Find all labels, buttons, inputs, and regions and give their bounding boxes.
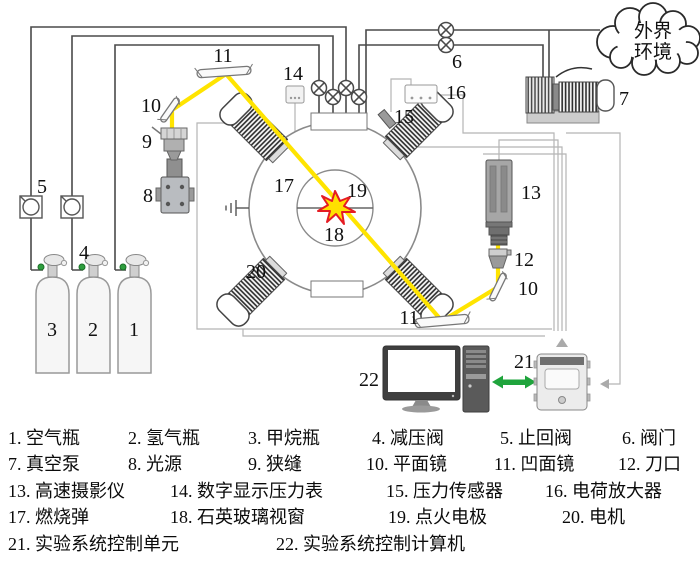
- monitor: [383, 346, 460, 413]
- check-valves: [20, 196, 83, 218]
- legend-pressure-sensor: 15. 压力传感器: [386, 477, 503, 503]
- light-source: [156, 159, 194, 213]
- check-valve-icon: [61, 196, 83, 218]
- control-unit: [534, 354, 590, 410]
- gas-cylinders: [36, 255, 151, 374]
- external-environment-cloud: 外界 环境: [597, 3, 700, 75]
- label-6: 6: [452, 51, 462, 73]
- label-21: 21: [514, 351, 534, 373]
- legend-methane-cylinder: 3. 甲烷瓶: [248, 424, 320, 450]
- electrode-terminal: [226, 200, 249, 216]
- legend-plane-mirror: 10. 平面镜: [366, 450, 447, 476]
- legend-control-unit: 21. 实验系统控制单元: [8, 530, 179, 556]
- label-11a: 11: [213, 45, 232, 67]
- label-4: 4: [79, 242, 89, 264]
- valve-icon: [312, 81, 327, 96]
- label-10b: 10: [518, 278, 538, 300]
- legend-digital-pressure-gauge: 14. 数字显示压力表: [170, 477, 323, 503]
- knife-edge: [489, 249, 511, 268]
- cloud-text-line2: 环境: [634, 41, 672, 63]
- computer-tower: [463, 346, 489, 412]
- charge-amplifier: [405, 85, 437, 103]
- legend-charge-amplifier: 16. 电荷放大器: [545, 477, 662, 503]
- label-18: 18: [324, 224, 344, 246]
- legend-knife-edge: 12. 刀口: [618, 450, 681, 476]
- legend-control-computer: 22. 实验系统控制计算机: [276, 530, 465, 556]
- label-13: 13: [521, 182, 541, 204]
- legend-pressure-regulator: 4. 减压阀: [372, 424, 444, 450]
- data-link-arrow-icon: [492, 376, 536, 389]
- vacuum-pump: [526, 68, 614, 123]
- legend-vacuum-pump: 7. 真空泵: [8, 450, 80, 476]
- bomb-bottom-flange: [311, 281, 363, 297]
- schematic-canvas: 外界 环境 1 2 3 4 5 6 7 8 9 10 11 14 15 16 1…: [0, 0, 700, 424]
- valve-icon: [326, 90, 341, 105]
- pressure-regulators: [38, 255, 149, 278]
- control-computer: [383, 346, 489, 413]
- label-17: 17: [274, 175, 294, 197]
- label-15: 15: [394, 106, 414, 128]
- arrow-up-icon: [556, 338, 568, 347]
- figure-experimental-system-schematic: 外界 环境 1 2 3 4 5 6 7 8 9 10 11 14 15 16 1…: [0, 0, 700, 572]
- label-8: 8: [143, 185, 153, 207]
- legend-quartz-window: 18. 石英玻璃视窗: [170, 503, 305, 529]
- label-19: 19: [347, 180, 367, 202]
- label-16: 16: [446, 82, 466, 104]
- label-9: 9: [142, 131, 152, 153]
- legend-air-cylinder: 1. 空气瓶: [8, 424, 80, 450]
- check-valve-icon: [20, 196, 42, 218]
- legend-valve: 6. 阀门: [622, 424, 676, 450]
- label-20: 20: [246, 261, 266, 283]
- label-3: 3: [47, 319, 57, 341]
- label-7: 7: [619, 88, 629, 110]
- valve-icon: [352, 90, 367, 105]
- cloud-text-line1: 外界: [634, 20, 672, 42]
- legend-motor: 20. 电机: [562, 503, 625, 529]
- legend-light-source: 8. 光源: [128, 450, 182, 476]
- label-12: 12: [514, 249, 534, 271]
- legend-concave-mirror: 11. 凹面镜: [494, 450, 574, 476]
- high-speed-camera: [486, 160, 512, 245]
- label-14: 14: [283, 63, 303, 85]
- regulator-icon: [120, 255, 149, 278]
- valve-icon: [339, 81, 354, 96]
- valve-6-icon: [439, 23, 454, 38]
- label-11b: 11: [399, 307, 418, 329]
- legend-ignition-electrode: 19. 点火电极: [388, 503, 487, 529]
- regulator-icon: [38, 255, 67, 278]
- label-1: 1: [129, 319, 139, 341]
- arrow-left-icon: [600, 379, 609, 389]
- legend-slit: 9. 狭缝: [248, 450, 302, 476]
- legend-check-valve: 5. 止回阀: [500, 424, 572, 450]
- legend-combustion-bomb: 17. 燃烧弹: [8, 503, 89, 529]
- bomb-top-flange: [311, 113, 367, 130]
- legend-hydrogen-cylinder: 2. 氢气瓶: [128, 424, 200, 450]
- digital-pressure-gauge: [286, 86, 304, 103]
- label-5: 5: [37, 176, 47, 198]
- legend-high-speed-camera: 13. 高速摄影仪: [8, 477, 125, 503]
- label-22: 22: [359, 369, 379, 391]
- label-2: 2: [88, 319, 98, 341]
- slit: [152, 127, 187, 160]
- label-10a: 10: [141, 95, 161, 117]
